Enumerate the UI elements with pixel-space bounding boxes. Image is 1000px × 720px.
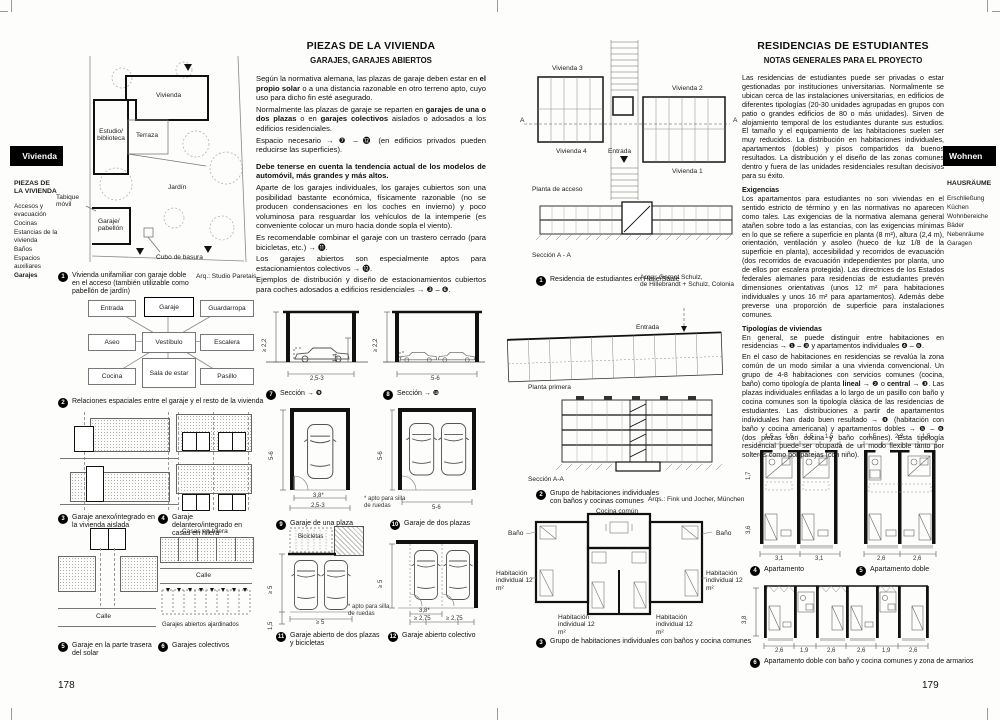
fig-caption-text: Sección → ❿ [397, 390, 439, 398]
fig-number-badge: 4 [750, 566, 760, 576]
dim-w2: ≥ 2,75 [414, 616, 431, 622]
dim-bottom-1: 3,1 [775, 556, 783, 562]
paragraph: Es recomendable combinar el garaje con u… [256, 233, 486, 252]
fig-r3-caption: 3 Grupo de habitaciones individuales con… [536, 638, 736, 648]
paragraph: Los apartamentos para estudiantes no son… [742, 195, 944, 320]
fig-number-badge: 10 [390, 520, 400, 530]
room-box-cocina: Cocina [88, 368, 136, 385]
label-garajes-ajardinados: Garajes abiertos ajardinados [162, 622, 239, 629]
label-section-a-right: A [733, 117, 737, 124]
book-spread: { "left_page": { "page_number": "178", "… [0, 0, 1000, 720]
right-sidebar-heading: HAUSRÄUME [947, 180, 993, 188]
label-habitacion-right: Habitación individual 12 m² [706, 570, 744, 592]
fig2-caption: 2 Relaciones espaciales entre el garaje … [58, 398, 268, 408]
dim-bottom-2: 1,9 [800, 648, 808, 654]
label-cocina-comun: Cocina común [596, 508, 638, 515]
paragraph: Ejemplos de distribución y diseño de est… [256, 275, 486, 294]
crop-mark [497, 0, 498, 12]
dim-left-1: 1,7 [746, 472, 752, 480]
fig5-caption: 5 Garaje en la parte trasera del solar [58, 642, 158, 658]
label-seccion-aa: Sección A - A [532, 252, 571, 259]
label-calle: Calle [196, 572, 211, 579]
fig-number-badge: 7 [266, 390, 276, 400]
section-heading-exigencias: Exigencias [742, 186, 944, 194]
fig-section-double: ≥ 2,2 5-6 [383, 304, 485, 384]
fig-number-badge: 3 [536, 638, 546, 648]
site-label-terraza: Terraza [136, 132, 158, 139]
sidebar-item-garagen: Garagen [947, 240, 993, 248]
fig-number-badge: 2 [58, 398, 68, 408]
fig-plan-two-car: 5-6 5-6 [390, 402, 484, 514]
paragraph: Debe tenerse en cuenta la tendencia actu… [256, 162, 486, 181]
room-box-garaje: Garaje [144, 297, 194, 317]
label-habitacion-left: Habitación individual 12 m² [496, 570, 534, 592]
dim-depth: ≥ 5 [268, 586, 274, 594]
crop-mark [0, 11, 8, 12]
dim-bottom-6: 2,6 [909, 648, 917, 654]
fig1-caption: 1 Vivienda unifamiliar con garaje doble … [58, 272, 190, 297]
fig-number-badge: 3 [58, 514, 68, 524]
paragraph: Espacio necesario → ❼ – ⓬ (en edificios … [256, 136, 486, 155]
dim-bottom-5: 1,9 [882, 648, 890, 654]
fig8-caption: 8 Sección → ❿ [383, 390, 475, 400]
sidebar-item-baeder: Bäder [947, 222, 993, 230]
fig-section-single: ≥ 2,2 1,4 2,5-3 [266, 304, 368, 384]
fig-number-badge: 5 [58, 642, 68, 652]
fig-number-badge: 4 [158, 514, 168, 524]
dim-top-4: 1,5 [825, 434, 833, 440]
crop-mark [987, 0, 988, 12]
fig11-caption: 11 Garaje abierto de dos plazas y bicicl… [276, 632, 384, 648]
left-sidebar: PIEZAS DE LA VIVIENDA Accesos y evacuaci… [14, 180, 60, 281]
section-drawing [556, 394, 724, 480]
fig-r2-credit: Arqs.: Fink und Jocher, München [648, 496, 744, 503]
site-label-tabique: Tabique móvil [56, 194, 84, 209]
sidebar-item-erschliessung: Erschließung [947, 195, 993, 203]
dim-bottom-2: 3,1 [815, 556, 823, 562]
fig-caption-text: Garaje en la parte trasera del solar [72, 642, 158, 658]
label-habitacion-bottom-left: Habitación individual 12 m² [558, 614, 602, 636]
left-page-number: 178 [58, 680, 75, 691]
fig-number-badge: 5 [856, 566, 866, 576]
fig-apartamento-doble-armarios: 3,8 2,6 1,9 2,6 2,6 1,9 2,6 [750, 578, 948, 656]
label-seccion-aa: Sección A-A [528, 476, 564, 483]
paragraph: Aparte de los garajes individuales, los … [256, 183, 486, 231]
fig-site-plan: Vivienda Estudio/ biblioteca Terraza Jar… [56, 56, 254, 268]
sidebar-item-kuechen: Küchen [947, 204, 993, 212]
sidebar-item-espacios: Espacios auxiliares [14, 255, 60, 271]
room-box-escalera: Escalera [200, 334, 254, 351]
crop-mark [987, 708, 988, 720]
planta-primera-drawing [498, 308, 738, 384]
sidebar-item-accesos: Accesos y evacuación [14, 203, 60, 219]
right-text-column: RESIDENCIAS DE ESTUDIANTES NOTAS GENERAL… [742, 40, 944, 462]
fig-r2-caption: 2 Grupo de habitaciones individualescon … [536, 490, 666, 506]
fig-number-badge: 2 [536, 490, 546, 500]
label-section-a-left: A [520, 117, 524, 124]
fig-room-relations: Entrada Garaje Guardarropa Aseo Vestíbul… [80, 296, 255, 391]
sidebar-item-cocinas: Cocinas [14, 220, 60, 228]
label-vivienda-2: Vivienda 2 [672, 85, 703, 92]
plan-drawing [496, 510, 742, 622]
right-page-title: RESIDENCIAS DE ESTUDIANTES [742, 40, 944, 52]
label-calle: Calle [96, 613, 111, 620]
access-plan-drawing [496, 40, 742, 200]
sidebar-item-estancias: Estancias de la vivienda [14, 229, 60, 245]
room-box-guardarropa: Guardarropa [200, 300, 254, 317]
fig-central-group: Cocina común Baño Baño Habitación indivi… [496, 508, 742, 636]
fig-caption-text: Apartamento doble [870, 566, 929, 574]
fig6-caption: 6 Garajes colectivos [158, 642, 254, 652]
fig-open-garage-collective: ≥ 5 3,8* ≥ 2,75 ≥ 2,75 [388, 538, 484, 626]
room-box-aseo: Aseo [88, 334, 136, 351]
plan-drawing [388, 538, 484, 626]
dim-left-2: 3,6 [746, 526, 752, 534]
fig-apartamento: 1,5 1,5 1,5 1,5 1,7 3,6 3,1 3,1 [750, 436, 846, 562]
dim-bottom-4: 2,6 [857, 648, 865, 654]
fig-linear-group: Entrada Planta primera Sección A-A [496, 300, 742, 488]
fig-plan-one-car: 5-6 3,8* 2,5-3 [276, 402, 364, 514]
fig-caption-text: Garaje de dos plazas [404, 520, 470, 528]
crop-mark [497, 708, 498, 720]
fig-number-badge: 12 [388, 632, 398, 642]
dim-depth: 5-6 [269, 451, 275, 460]
plan-drawing [856, 436, 948, 562]
label-vivienda-3: Vivienda 3 [552, 65, 583, 72]
fig10-caption: 10 Garaje de dos plazas [390, 520, 490, 530]
right-sidebar: HAUSRÄUME Erschließung Küchen Wohnbereic… [947, 180, 993, 249]
fig-garage-attached [60, 412, 178, 510]
wheelchair-note: * apto para silla de ruedas [348, 604, 390, 618]
fig-r1-credit: Arqs.: Gernot Schulz, de Hillebrandt + S… [640, 274, 740, 289]
label-vivienda-4: Vivienda 4 [556, 148, 587, 155]
left-tab-label: Vivienda [22, 151, 57, 161]
fig-caption-text: Apartamento doble con baño y cocina comu… [764, 658, 973, 666]
section-heading-tipologias: Tipologías de viviendas [742, 325, 944, 333]
dim-depth: ≥ 5 [378, 580, 384, 588]
section-aa-drawing [536, 200, 736, 248]
fig-caption-text: Garajes colectivos [172, 642, 229, 650]
fig-r5-caption: 5 Apartamento doble [856, 566, 946, 576]
paragraph: Las residencias de estudiantes puede ser… [742, 74, 944, 181]
label-planta-acceso: Planta de acceso [532, 186, 583, 193]
dim-top-2: 1,5 [785, 434, 793, 440]
fig-caption-text: Garaje abierto de dos plazas y bicicleta… [290, 632, 384, 648]
dim-top-2: 2,2 [895, 434, 903, 440]
dim-width: 5-6 [432, 505, 441, 511]
dim-depth: 5-6 [378, 451, 384, 460]
label-vivienda-1: Vivienda 1 [672, 168, 703, 175]
fig-caption-text: Sección → ❾ [280, 390, 322, 398]
fig-caption-text: Apartamento [764, 566, 804, 574]
fig-caption-text: Grupo de habitaciones individualescon ba… [550, 490, 659, 506]
fig7-caption: 7 Sección → ❾ [266, 390, 358, 400]
label-entrada: Entrada [608, 148, 631, 155]
paragraph: Según la normativa alemana, las plazas d… [256, 74, 486, 103]
dim-bottom-1: 2,6 [877, 556, 885, 562]
crop-mark [992, 11, 1000, 12]
dim-w1: 3,8* [419, 608, 430, 614]
label-bano-right: Baño [716, 530, 731, 537]
fig-caption-text: Grupo de habitaciones individuales con b… [550, 638, 751, 646]
dim-top-1: 1,5 [765, 434, 773, 440]
site-label-garaje: Garaje/ pabellón [98, 218, 128, 233]
label-habitacion-bottom-right: Habitación individual 12 m² [656, 614, 700, 636]
fig-number-badge: 8 [383, 390, 393, 400]
sidebar-item-wohnbereiche: Wohnbereiche [947, 213, 993, 221]
open-garages-row [160, 588, 256, 618]
dim-top-3: 1,5 [805, 434, 813, 440]
dim-w3: ≥ 2,75 [446, 616, 463, 622]
site-label-estudio: Estudio/ biblioteca [96, 128, 126, 143]
right-page-tab: Wohnen [943, 146, 996, 166]
dim-w2: 2,5-3 [311, 503, 325, 509]
plan-drawing [390, 402, 484, 514]
section-drawing [266, 304, 368, 384]
site-plan-drawing [56, 56, 254, 268]
sidebar-item-banos: Baños [14, 246, 60, 254]
dim-bottom-1: 2,6 [775, 648, 783, 654]
left-page-subtitle: GARAJES, GARAJES ABIERTOS [256, 56, 486, 65]
fig-r4-caption: 4 Apartamento [750, 566, 840, 576]
site-label-vivienda: Vivienda [156, 92, 181, 99]
dim-height: ≥ 2,2 [373, 339, 379, 352]
plan-drawing [750, 578, 948, 656]
fig-r6-caption: 6 Apartamento doble con baño y cocina co… [750, 658, 950, 668]
label-bano-left: Baño [508, 530, 523, 537]
dim-strip: 1,5 [268, 622, 274, 630]
dim-top-3: 1,5 [922, 434, 930, 440]
fig-collective-garages: Casas en hilera Calle Garajes abiertos a… [160, 528, 256, 636]
room-box-pasillo: Pasillo [200, 368, 254, 385]
fig-caption-text: Garaje abierto colectivo [402, 632, 476, 640]
crop-mark [11, 708, 12, 720]
paragraph: Normalmente las plazas de garaje se repa… [256, 105, 486, 134]
fig-caption-text: Relaciones espaciales entre el garaje y … [72, 398, 263, 406]
fig1-credit: Arq.: Studio Paretais [196, 273, 256, 280]
paragraph: En general, se puede distinguir entre ha… [742, 334, 944, 352]
right-page-subtitle: NOTAS GENERALES PARA EL PROYECTO [742, 56, 944, 65]
fig-number-badge: 6 [750, 658, 760, 668]
dim-bottom-3: 2,6 [827, 648, 835, 654]
left-page-title: PIEZAS DE LA VIVIENDA [256, 40, 486, 52]
left-text-column: PIEZAS DE LA VIVIENDA GARAJES, GARAJES A… [256, 40, 486, 296]
dim-height: ≥ 2,2 [262, 339, 268, 352]
sidebar-item-nebenraeume: Nebenräume [947, 231, 993, 239]
dim-width: ≥ 5 [316, 620, 324, 626]
fig-apartamento-doble: 1,5 2,2 1,5 2,6 2,6 [856, 436, 948, 562]
label-casas-hilera: Casas en hilera [182, 528, 228, 535]
section-drawing [383, 304, 485, 384]
dim-w1: 3,8* [313, 493, 324, 499]
dim-door: 1,4 [333, 354, 339, 362]
fig-halle-residence: Vivienda 3 Vivienda 2 A A Vivienda 4 Ent… [496, 40, 742, 292]
sidebar-item-garajes: Garajes [14, 272, 60, 280]
left-sidebar-heading: PIEZAS DE LA VIVIENDA [14, 180, 60, 196]
fig-number-badge: 11 [276, 632, 286, 642]
label-entrada: Entrada [636, 324, 659, 331]
dim-bottom-2: 2,6 [913, 556, 921, 562]
crop-mark [11, 0, 12, 12]
fig-number-badge: 6 [158, 642, 168, 652]
site-label-cubo: Cubo de basura [156, 254, 203, 261]
room-box-vestibulo: Vestíbulo [142, 332, 196, 353]
dim-top-1: 1,5 [868, 434, 876, 440]
plan-drawing [750, 436, 846, 562]
fig12-caption: 12 Garaje abierto colectivo [388, 632, 488, 642]
fig-number-badge: 1 [58, 272, 68, 282]
right-page-number: 179 [922, 680, 939, 691]
site-label-jardin: Jardín [168, 184, 186, 191]
dim-width: 2,5-3 [310, 376, 324, 382]
room-box-sala: Sala de estar [142, 358, 196, 388]
fig-caption-text: Vivienda unifamiliar con garaje doble en… [72, 272, 190, 297]
dim-width: 5-6 [431, 376, 440, 382]
fig-garage-rear: Calle [58, 528, 156, 636]
label-planta-primera: Planta primera [528, 384, 571, 391]
label-bicicletas: Bicicletas [298, 534, 323, 541]
right-tab-label: Wohnen [949, 151, 982, 161]
paragraph: Los garajes abiertos son especialmente a… [256, 254, 486, 273]
fig-garage-rowhouse [176, 412, 252, 510]
dim-left: 3,8 [742, 616, 748, 624]
fig-number-badge: 1 [536, 276, 546, 286]
room-box-entrada: Entrada [88, 300, 136, 317]
